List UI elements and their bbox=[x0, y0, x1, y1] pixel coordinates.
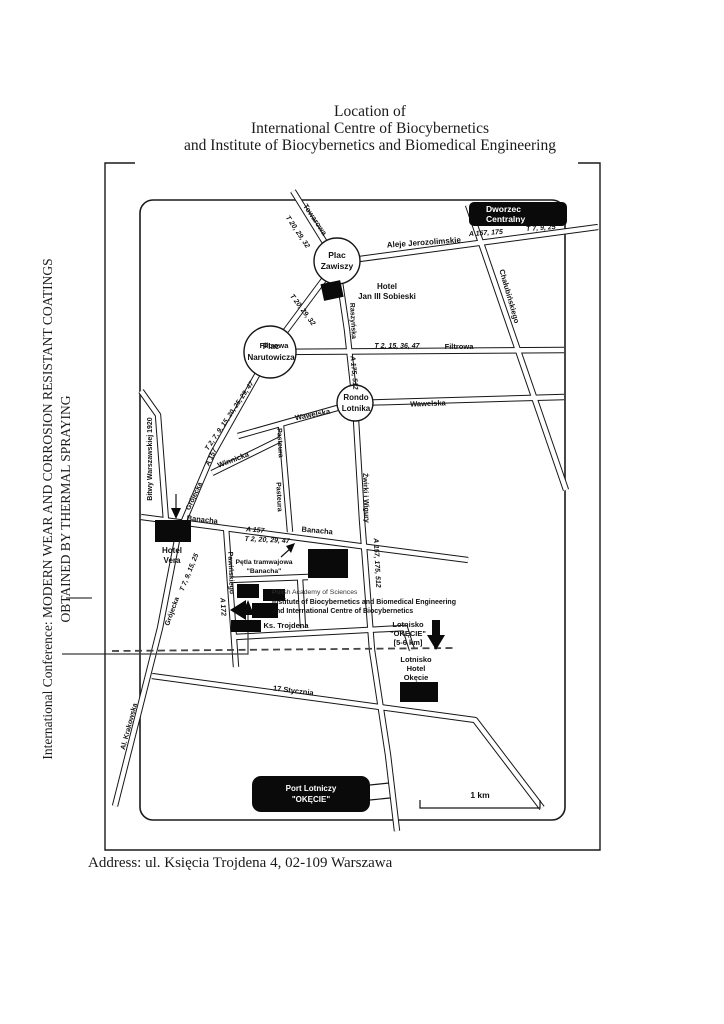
tram-loop-label: Pętla tramwajowa bbox=[235, 559, 292, 566]
street-label-banacha-east: Banacha bbox=[301, 525, 334, 537]
port-lotniczy-label: Port Lotniczy bbox=[286, 784, 337, 793]
plac-zawiszy-label: Plac bbox=[328, 250, 346, 260]
route-label-zwirki-buses: A 157, 175, 512 bbox=[372, 537, 382, 588]
centre-label: and International Centre of Biocyberneti… bbox=[272, 608, 413, 615]
street-label-filtrowa-east: Filtrowa bbox=[445, 342, 475, 351]
hotel-okecie-label: Lotnisko bbox=[400, 655, 432, 664]
scale-label: 1 km bbox=[470, 790, 490, 800]
hotel-okecie-label: Hotel bbox=[407, 664, 426, 673]
street-label-wawelska-west: Wawelska bbox=[294, 407, 331, 423]
hotel-sobieski-label: Hotel bbox=[377, 282, 397, 291]
street-label-filtrowa-west: Filtrowa bbox=[260, 341, 290, 350]
hotel-okecie-label: Okęcie bbox=[404, 673, 429, 682]
street-label-pawinskiego: Pawińskiego bbox=[226, 552, 234, 595]
scale-bar bbox=[420, 800, 540, 808]
route-label-banacha-trams: T 2, 20, 29, 47 bbox=[244, 536, 291, 545]
route-label-pawinskiego-bus: A 172 bbox=[218, 596, 226, 616]
rondo-lotnika-roundabout bbox=[337, 385, 373, 421]
academy-label: Polish Academy of Sciences bbox=[272, 589, 358, 596]
route-label-filtrowa-trams: T 2, 15, 36, 47 bbox=[374, 343, 420, 350]
hotel-okecie-building bbox=[400, 682, 438, 702]
route-label-grojecka-lower-trams: T 7, 9, 15, 25 bbox=[179, 552, 201, 592]
street-label-wawelska-east: Wawelska bbox=[410, 398, 447, 408]
bitwy-direction-arrow-icon bbox=[171, 494, 181, 519]
port-lotniczy-box bbox=[252, 776, 370, 812]
rondo-lotnika-label: Rondo bbox=[343, 393, 368, 402]
airport-distance-label: "OKĘCIE" bbox=[390, 629, 426, 638]
route-label-towarowa-trams: T 20, 29, 32 bbox=[284, 215, 311, 250]
street-label-pasteura-south: Pasteura bbox=[274, 482, 283, 512]
street-label-grojecka: Grójecka bbox=[185, 481, 204, 511]
airport-direction-arrow-icon bbox=[427, 620, 445, 650]
institute-label: Institute of Biocybernetics and Biomedic… bbox=[272, 599, 456, 606]
route-label-jerozolimskie-buses: A 157, 175 bbox=[468, 229, 503, 238]
plac-narutowicza-roundabout bbox=[244, 326, 296, 378]
city-map: Plac Zawiszy Plac Narutowicza Rondo Lotn… bbox=[0, 0, 724, 1024]
hotel-sobieski-label: Jan III Sobieski bbox=[358, 292, 416, 301]
hotel-vera-label: Vera bbox=[164, 556, 181, 565]
rondo-lotnika-label: Lotnika bbox=[342, 404, 371, 413]
airport-distance-label: [5-6 km] bbox=[394, 638, 423, 647]
route-label-grojecka-trams: T 2, 7, 9, 15, 20, 25, 29, 47 bbox=[204, 379, 256, 452]
airport-access-road bbox=[370, 798, 390, 800]
airport-distance-label: Lotnisko bbox=[392, 620, 424, 629]
street-label-bitwy-warszawskiej: Bitwy Warszawskiej 1920 bbox=[147, 417, 154, 501]
tram-loop-label: "Banacha" bbox=[247, 568, 282, 575]
plac-narutowicza-label: Narutowicza bbox=[247, 353, 295, 362]
hotel-vera-building bbox=[155, 520, 191, 542]
street-label-pasteura-north: Pasteura bbox=[275, 428, 284, 458]
dashed-boundary-line bbox=[112, 648, 455, 651]
tram-loop-area bbox=[308, 549, 348, 578]
port-lotniczy-label: "OKĘCIE" bbox=[292, 795, 330, 804]
dworzec-centralny-label: Centralny bbox=[486, 214, 525, 224]
hotel-vera-label: Hotel bbox=[162, 546, 182, 555]
dworzec-centralny-label: Dworzec bbox=[486, 204, 521, 214]
street-label-winnicka: Winnicka bbox=[216, 449, 251, 469]
document-page: Location of International Centre of Bioc… bbox=[0, 0, 724, 1024]
airport-access-road bbox=[370, 783, 389, 785]
street-label-ks-trojdena: Ks. Trojdena bbox=[263, 621, 309, 630]
plac-zawiszy-label: Zawiszy bbox=[321, 261, 354, 271]
road-network bbox=[115, 191, 598, 831]
